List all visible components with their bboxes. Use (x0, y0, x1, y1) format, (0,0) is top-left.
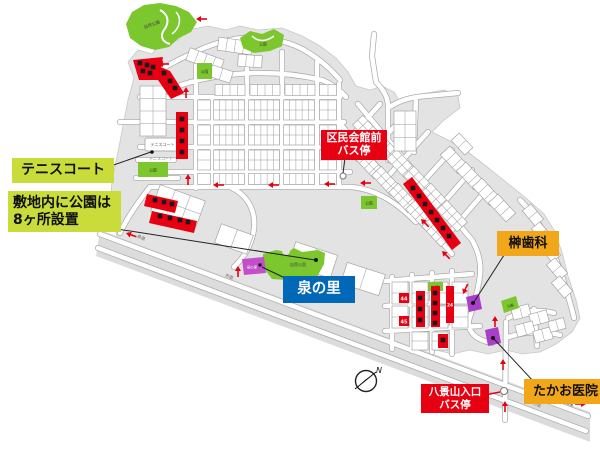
sold-lot-marker (418, 296, 423, 301)
label-izumi-no-sato: 泉の里 (283, 276, 355, 303)
hakkeizan-bus-stop-circle (501, 388, 508, 395)
sold-lot-marker (148, 71, 153, 76)
lot-block (198, 150, 211, 170)
label-parks-note-line1: 敷地内に公園は (13, 195, 111, 212)
sold-lot-marker (180, 139, 185, 144)
sold-lot-marker (418, 307, 423, 312)
lot-block (214, 150, 245, 170)
sold-lot-marker (173, 86, 178, 91)
label-takao-clinic: たかお医院 (524, 379, 600, 404)
sold-lot-marker (151, 65, 156, 70)
sold-lot-marker (433, 311, 438, 316)
lot-block (250, 85, 280, 96)
park-mid-upper-label: 公園 (201, 69, 209, 74)
sold-lot-marker (435, 218, 440, 223)
compass-north-indicator: N (355, 366, 382, 392)
lot-block (238, 54, 263, 68)
lot-45-label: 45 (401, 320, 408, 326)
sold-lot-marker (411, 186, 416, 191)
label-izumi-no-sato-text: 泉の里 (297, 281, 341, 298)
sold-lot-marker (441, 226, 446, 231)
lot-block (198, 125, 211, 145)
label-tennis-court-text: テニスコート (21, 162, 105, 179)
sold-lot-marker (180, 128, 185, 133)
lot-block (320, 85, 337, 96)
sold-lot-marker (417, 194, 422, 199)
lot-block (412, 332, 428, 350)
lot-block (214, 125, 245, 145)
izumi-no-sato-block-label: 泉の里 (247, 265, 258, 270)
sold-lot-marker (186, 220, 191, 225)
kumin-bus-stop-circle (340, 173, 346, 179)
label-hakkeizan-bus-stop: 八景山入口 バス停 (421, 384, 489, 413)
lot-block (320, 100, 337, 120)
tennis-court-box-label: テニスコート (151, 141, 175, 147)
lot-block (249, 174, 280, 185)
sold-lot-marker (423, 202, 428, 207)
sold-lot-marker (138, 61, 143, 66)
map-canvas: テニスコート テニスコート 自然公園 公園 公園 公園 公園 公園 公園 自然公… (0, 0, 600, 450)
lot-block (284, 125, 315, 145)
lot-block (452, 282, 468, 304)
label-kumin-kaikan-line2: バス停 (338, 145, 371, 158)
label-sakaki-dental-text: 榊歯科 (508, 236, 547, 251)
lot-44-label: 44 (401, 297, 408, 303)
sold-lot-marker (168, 79, 173, 84)
sold-lot-marker (429, 210, 434, 215)
traffic-arrow-icon (196, 16, 207, 22)
sold-lot-marker (180, 117, 185, 122)
lot-block (198, 100, 211, 120)
lot-block (394, 111, 416, 151)
lot-block (198, 174, 211, 185)
label-hakkeizan-line1: 八景山入口 (429, 386, 482, 398)
park-topright-label: 公園 (259, 42, 267, 47)
lot-block (140, 86, 166, 136)
lot-block (284, 174, 315, 185)
lot-block (214, 100, 245, 120)
compass-north-label: N (376, 366, 382, 375)
sold-lot-marker (170, 202, 175, 207)
tennis-court-sub-label: テニスコート (149, 155, 173, 161)
label-parks-note: 敷地内に公園は 8ヶ所設置 (8, 191, 121, 232)
sold-lot-marker (168, 216, 173, 221)
label-tennis-court: テニスコート (12, 158, 114, 183)
label-parks-note-line2: 8ヶ所設置 (13, 212, 79, 229)
sold-lot-marker (162, 71, 167, 76)
lot-block (452, 306, 468, 328)
sold-lot-marker (180, 150, 185, 155)
sold-lot-marker (141, 69, 146, 74)
nature-park-lower-label: 自然公園 (290, 261, 306, 267)
lot-block (284, 150, 315, 170)
lot-block (285, 85, 315, 96)
lot-24-label: 24 (447, 303, 453, 309)
sold-lot-marker (447, 234, 452, 239)
sold-lot-marker (433, 301, 438, 306)
sold-lot-marker (145, 63, 150, 68)
lot-block (249, 150, 280, 170)
sold-lot-marker (153, 198, 158, 203)
sold-lot-marker (162, 200, 167, 205)
label-takao-clinic-text: たかお医院 (533, 384, 598, 399)
lot-block (214, 174, 245, 185)
sold-lot-marker (418, 318, 423, 323)
lot-block (284, 100, 315, 120)
lot-block (249, 100, 280, 120)
park-central-label: 公園 (365, 201, 373, 206)
sold-lot-marker (158, 214, 163, 219)
sold-lot-marker (178, 218, 183, 223)
sold-lot-marker (433, 291, 438, 296)
lot-block (215, 85, 245, 96)
label-sakaki-dental: 榊歯科 (497, 231, 559, 256)
label-kumin-kaikan-bus-stop: 区民会館前 バス停 (321, 130, 387, 160)
sold-lot-marker (433, 321, 438, 326)
park-tennis-label: 公園 (149, 168, 157, 173)
label-hakkeizan-line2: バス停 (439, 399, 471, 411)
lot-block (249, 125, 280, 145)
sold-lot-marker (441, 338, 446, 343)
